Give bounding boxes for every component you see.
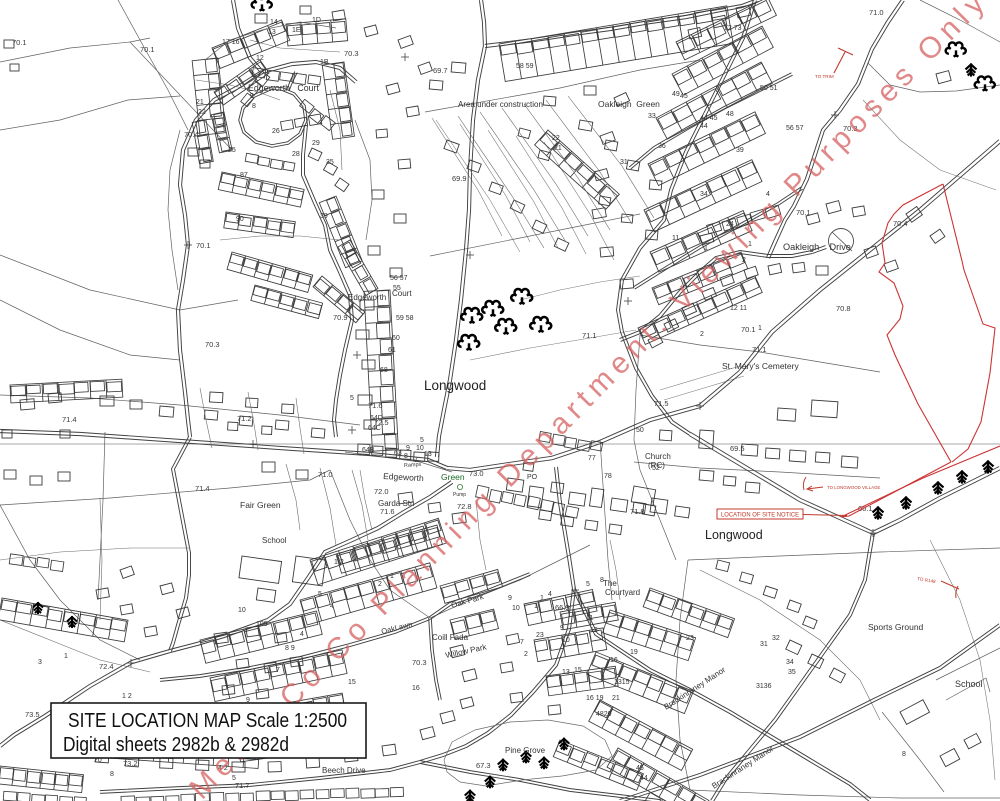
svg-text:48: 48: [726, 111, 734, 118]
svg-text:Edgeworth: Edgeworth: [348, 293, 386, 302]
svg-text:63: 63: [394, 450, 402, 457]
svg-text:10: 10: [238, 607, 246, 614]
svg-text:19: 19: [630, 649, 638, 656]
svg-text:70.1: 70.1: [12, 38, 27, 47]
svg-text:44 45: 44 45: [700, 115, 718, 122]
svg-text:1315: 1315: [614, 679, 630, 686]
svg-text:4: 4: [548, 591, 552, 598]
svg-text:TO TRIM: TO TRIM: [815, 74, 834, 79]
svg-text:60: 60: [392, 335, 400, 342]
svg-text:Ramps: Ramps: [404, 462, 422, 469]
svg-text:13: 13: [268, 29, 276, 36]
svg-text:8: 8: [600, 577, 604, 584]
svg-text:66.9: 66.9: [555, 603, 570, 612]
svg-text:73.0: 73.0: [469, 469, 484, 478]
svg-text:70.3: 70.3: [205, 340, 220, 349]
svg-text:64B: 64B: [362, 447, 375, 454]
svg-text:45: 45: [680, 93, 688, 100]
svg-text:9: 9: [508, 595, 512, 602]
svg-text:70.1: 70.1: [140, 45, 155, 54]
svg-text:Beech Drive: Beech Drive: [322, 766, 366, 775]
svg-text:Oakleigh Green: Oakleigh Green: [598, 99, 660, 109]
svg-text:70.3: 70.3: [412, 658, 427, 667]
svg-text:The: The: [603, 579, 617, 588]
svg-text:9: 9: [560, 625, 564, 632]
svg-text:Courtyard: Courtyard: [605, 588, 640, 597]
svg-text:4: 4: [330, 603, 334, 610]
svg-text:St. Mary's Cemetery: St. Mary's Cemetery: [722, 361, 799, 371]
svg-text:71.1: 71.1: [752, 345, 767, 354]
svg-text:34: 34: [700, 191, 708, 198]
svg-text:35: 35: [788, 669, 796, 676]
svg-text:14: 14: [270, 19, 278, 26]
svg-text:64D: 64D: [370, 415, 383, 422]
svg-text:1: 1: [534, 603, 538, 610]
svg-text:4820: 4820: [596, 711, 612, 718]
svg-text:5: 5: [586, 581, 590, 588]
svg-text:71.6: 71.6: [368, 401, 383, 410]
svg-text:70.1: 70.1: [741, 325, 756, 334]
svg-text:72.0: 72.0: [374, 487, 389, 496]
svg-text:5: 5: [318, 591, 322, 598]
svg-text:1 2: 1 2: [334, 559, 344, 566]
svg-text:12 11: 12 11: [730, 305, 747, 312]
svg-text:87: 87: [240, 172, 248, 179]
svg-text:3: 3: [38, 659, 42, 666]
svg-text:26: 26: [272, 128, 280, 135]
svg-text:9: 9: [406, 445, 410, 452]
svg-text:13: 13: [424, 451, 432, 458]
svg-text:69.7: 69.7: [433, 66, 448, 75]
svg-text:35: 35: [326, 159, 334, 166]
svg-text:21: 21: [554, 145, 562, 152]
svg-text:52: 52: [652, 465, 660, 472]
svg-text:8: 8: [404, 453, 408, 460]
svg-text:36: 36: [658, 143, 666, 150]
svg-text:School: School: [262, 536, 287, 545]
svg-text:34: 34: [786, 659, 794, 666]
svg-text:71.0: 71.0: [318, 470, 333, 479]
svg-text:Pine Grove: Pine Grove: [505, 746, 546, 755]
svg-text:10: 10: [416, 445, 424, 452]
svg-text:73.5: 73.5: [25, 710, 40, 719]
svg-text:70.1: 70.1: [196, 241, 211, 250]
svg-text:TO LONGWOOD VILLAGE: TO LONGWOOD VILLAGE: [827, 485, 880, 490]
svg-text:10: 10: [562, 637, 570, 644]
svg-text:32: 32: [772, 635, 780, 642]
svg-text:59 58: 59 58: [396, 315, 414, 322]
svg-text:33: 33: [648, 113, 656, 120]
svg-text:69.9: 69.9: [452, 174, 467, 183]
svg-text:71.7: 71.7: [235, 781, 250, 790]
svg-text:71.6: 71.6: [380, 507, 395, 516]
svg-text:16: 16: [412, 685, 420, 692]
svg-text:58 59: 58 59: [516, 63, 534, 70]
svg-text:71.1: 71.1: [582, 331, 597, 340]
svg-text:71.2: 71.2: [237, 414, 252, 423]
svg-text:70.8: 70.8: [836, 304, 851, 313]
svg-text:Edgeworth Court: Edgeworth Court: [248, 83, 319, 93]
svg-text:21: 21: [612, 695, 620, 702]
svg-text:61: 61: [388, 347, 396, 354]
svg-text:39: 39: [320, 213, 328, 220]
svg-text:Sports Ground: Sports Ground: [868, 622, 924, 632]
svg-text:12: 12: [590, 627, 598, 634]
svg-text:Green: Green: [441, 472, 465, 482]
svg-text:1 2: 1 2: [122, 693, 132, 700]
svg-text:71.4: 71.4: [62, 415, 77, 424]
svg-text:1E: 1E: [292, 27, 301, 34]
svg-text:64C: 64C: [368, 425, 381, 432]
svg-text:Oakleigh Drive: Oakleigh Drive: [783, 242, 851, 252]
svg-text:8 9: 8 9: [285, 645, 295, 652]
svg-text:71.0: 71.0: [869, 8, 884, 17]
svg-text:Fair Green: Fair Green: [240, 500, 281, 510]
svg-text:15: 15: [574, 667, 582, 674]
svg-text:45: 45: [636, 765, 644, 772]
svg-text:1: 1: [540, 595, 544, 602]
svg-text:71.4: 71.4: [195, 484, 210, 493]
svg-text:70.9: 70.9: [333, 313, 348, 322]
svg-text:1: 1: [64, 653, 68, 660]
svg-text:71.8: 71.8: [630, 507, 645, 516]
svg-text:23: 23: [686, 635, 694, 642]
svg-text:68: 68: [380, 367, 388, 374]
svg-text:5: 5: [420, 437, 424, 444]
svg-text:7: 7: [276, 667, 280, 674]
svg-text:67.3: 67.3: [476, 761, 491, 770]
svg-text:Digital sheets 2982b & 2982d: Digital sheets 2982b & 2982d: [63, 734, 289, 756]
svg-text:56 57: 56 57: [786, 125, 804, 132]
svg-text:23: 23: [536, 632, 544, 639]
svg-text:90: 90: [236, 216, 244, 223]
svg-text:Coill Fada: Coill Fada: [432, 633, 469, 642]
svg-text:7: 7: [520, 639, 524, 646]
svg-text:70.3: 70.3: [344, 49, 359, 58]
svg-text:44: 44: [700, 123, 708, 130]
svg-text:Edgeworth: Edgeworth: [383, 471, 424, 483]
svg-text:Longwood: Longwood: [424, 378, 486, 393]
svg-text:56 57: 56 57: [390, 275, 408, 282]
svg-text:8: 8: [110, 771, 114, 778]
svg-text:3136: 3136: [756, 683, 772, 690]
svg-text:8: 8: [252, 103, 256, 110]
svg-text:78: 78: [604, 473, 612, 480]
svg-text:109: 109: [256, 621, 268, 628]
svg-text:72.4: 72.4: [99, 662, 114, 671]
svg-text:49: 49: [672, 91, 680, 98]
svg-text:11: 11: [586, 615, 593, 622]
svg-text:SITE LOCATION MAP Scale 1:250: SITE LOCATION MAP Scale 1:2500: [68, 710, 347, 732]
svg-text:16 19: 16 19: [586, 695, 604, 702]
svg-text:71.5: 71.5: [654, 399, 669, 408]
svg-text:7: 7: [414, 457, 418, 464]
svg-text:Area under construction: Area under construction: [458, 100, 543, 109]
svg-text:1D: 1D: [312, 17, 321, 24]
svg-text:17 16: 17 16: [222, 39, 240, 46]
svg-text:72 73: 72 73: [724, 25, 742, 32]
svg-text:31: 31: [760, 641, 768, 648]
svg-text:10: 10: [512, 605, 520, 612]
svg-text:16: 16: [610, 657, 618, 664]
svg-text:22: 22: [552, 135, 560, 142]
svg-text:29: 29: [312, 140, 320, 147]
svg-text:39: 39: [736, 147, 744, 154]
svg-text:31: 31: [620, 159, 628, 166]
svg-text:LOCATION OF SITE NOTICE: LOCATION OF SITE NOTICE: [721, 513, 799, 519]
svg-text:21: 21: [196, 99, 204, 106]
svg-text:70.4: 70.4: [893, 219, 908, 228]
svg-text:28: 28: [292, 151, 300, 158]
svg-text:1B: 1B: [320, 59, 329, 66]
svg-text:Church: Church: [645, 452, 671, 461]
svg-text:2: 2: [700, 331, 704, 338]
svg-text:50: 50: [636, 427, 644, 434]
svg-text:44: 44: [640, 775, 648, 782]
svg-text:25: 25: [228, 147, 236, 154]
svg-text:77: 77: [588, 455, 596, 462]
svg-text:50 51: 50 51: [760, 85, 778, 92]
svg-text:12: 12: [256, 55, 264, 62]
svg-text:55: 55: [393, 285, 401, 292]
svg-text:73.2: 73.2: [123, 759, 138, 768]
svg-text:2: 2: [524, 651, 528, 658]
svg-text:70.1: 70.1: [796, 208, 811, 217]
svg-text:15: 15: [348, 679, 356, 686]
svg-text:11: 11: [672, 235, 679, 242]
svg-text:1: 1: [758, 325, 762, 332]
svg-text:5: 5: [350, 395, 354, 402]
svg-text:Longwood: Longwood: [705, 528, 763, 542]
svg-text:4: 4: [300, 631, 304, 638]
svg-text:22: 22: [198, 109, 206, 116]
svg-text:9: 9: [250, 93, 254, 100]
svg-text:70.4: 70.4: [184, 130, 199, 139]
svg-text:69.5: 69.5: [730, 444, 745, 453]
svg-text:School: School: [955, 679, 983, 689]
svg-text:13: 13: [562, 669, 570, 676]
svg-text:8: 8: [902, 751, 906, 758]
